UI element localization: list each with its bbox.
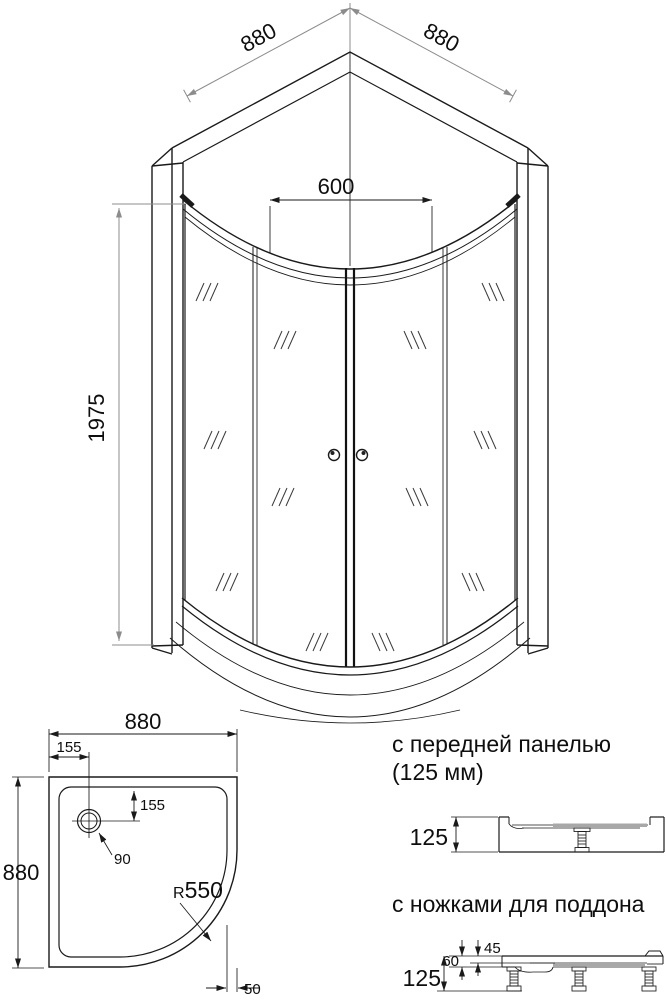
radius-prefix: R	[173, 885, 185, 902]
side-view-legs: с ножками для поддона	[392, 891, 663, 991]
legs-profile	[502, 951, 663, 972]
legs-total-height-dim: 125	[403, 965, 441, 991]
front-opening-dim: 600	[318, 174, 355, 199]
drain-foot	[575, 848, 589, 853]
drain-offset-x-dim: 155	[56, 739, 81, 756]
front-width-left-dim: 880	[236, 18, 280, 57]
corner-radius-dim: R550	[173, 877, 223, 903]
glass-reflections	[196, 283, 504, 651]
front-panel-title-line1: с передней панелью	[392, 731, 611, 757]
leg-1	[507, 967, 521, 991]
door-knobs	[329, 450, 368, 461]
leg-2	[572, 967, 586, 991]
side-view-front-panel: с передней панелью (125 мм)	[392, 731, 664, 852]
left-door-knob	[329, 450, 340, 461]
shower-enclosure-technical-drawing: 880 880 1975	[0, 0, 666, 1000]
front-width-right-dim: 880	[419, 18, 463, 57]
corner-radius-callout: R550	[173, 877, 223, 941]
front-panel-profile	[499, 817, 664, 852]
drain-flange	[574, 828, 590, 832]
drain-offset-y-dim: 155	[140, 797, 165, 814]
drain-stem	[578, 832, 586, 848]
front-panel-height-dimension: 125	[410, 817, 498, 852]
plan-depth-dimension: 880	[3, 777, 44, 968]
plan-width-dim: 880	[125, 709, 162, 734]
right-door-knob	[357, 450, 368, 461]
radius-value: 550	[185, 877, 223, 903]
glass-panels	[185, 204, 515, 667]
tray-height-dim: 60	[442, 953, 459, 970]
right-door-knob-detail	[362, 451, 366, 455]
tray-front	[170, 598, 530, 723]
edge-offset-dim: 50	[244, 981, 261, 998]
plan-view: 880 880 155 155 90 R550	[3, 709, 261, 998]
front-panel-height-dim: 125	[410, 824, 448, 850]
basin-depth-dim: 45	[484, 940, 501, 957]
left-door-knob-detail	[331, 451, 335, 455]
height-dimension: 1975	[84, 204, 186, 645]
front-height-dim: 1975	[84, 394, 109, 443]
front-panel-title-line2: (125 мм)	[392, 759, 484, 785]
basin-floor-shading	[553, 824, 647, 828]
drain-diameter-callout: 90	[99, 833, 131, 868]
tray-legs	[507, 967, 656, 991]
legs-title: с ножками для поддона	[392, 891, 645, 917]
front-view: 880 880 1975	[84, 3, 548, 723]
opening-dimension: 600	[270, 174, 432, 253]
technical-drawing-page: 880 880 1975	[0, 0, 666, 1000]
drain-diameter-dim: 90	[114, 851, 131, 868]
edge-offset-dimension: 50	[206, 925, 261, 998]
plan-depth-dim: 880	[3, 860, 40, 885]
legs-dimensions: 45 60 125	[403, 940, 555, 991]
basin-floor-shading-2	[553, 963, 645, 966]
leg-3	[642, 967, 656, 991]
